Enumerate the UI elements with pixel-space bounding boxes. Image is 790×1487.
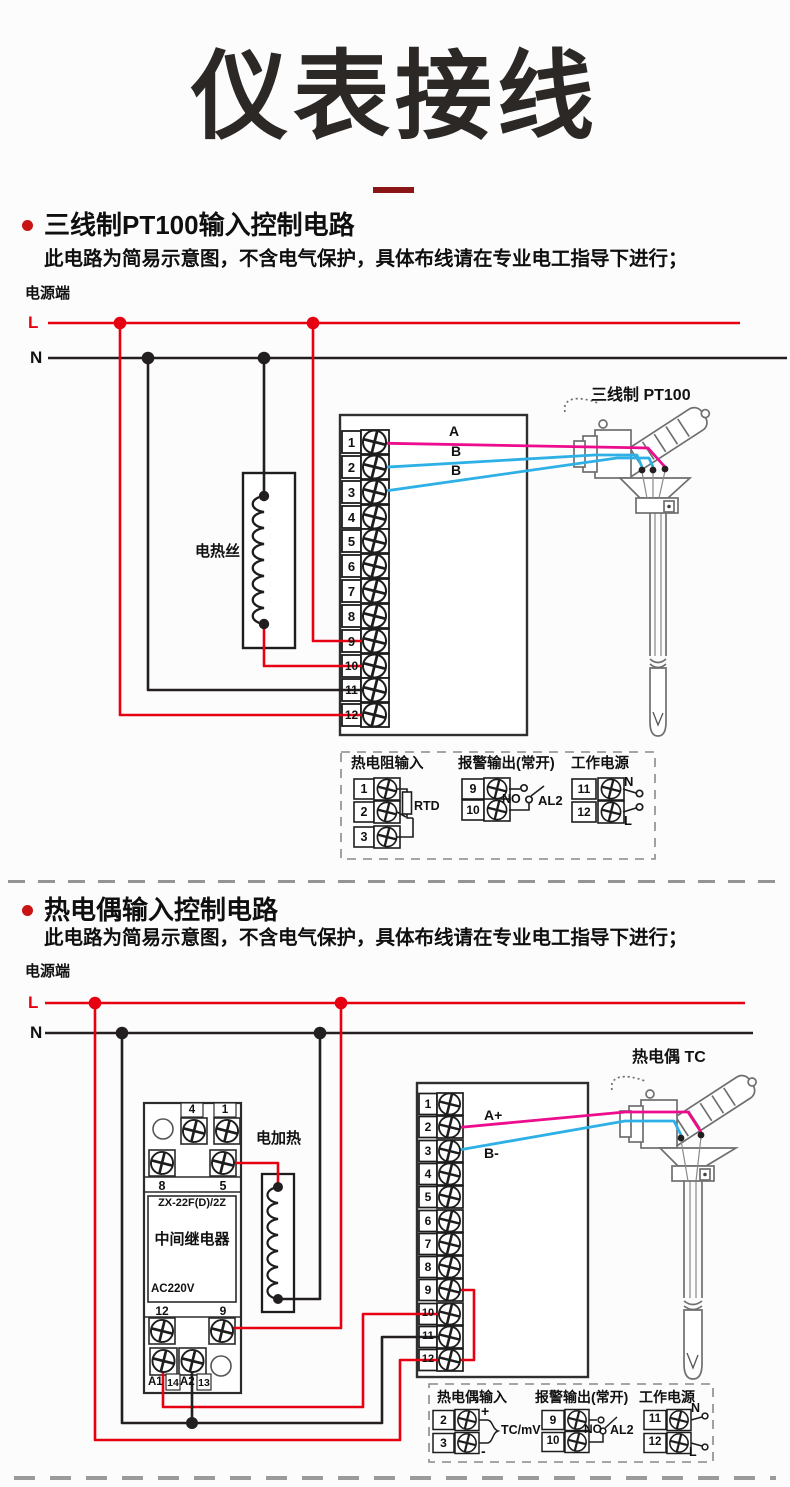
relay-t1: 1 (214, 1105, 236, 1117)
i2-terminal: 9 (419, 1284, 437, 1296)
legend1-rtd-component: RTD (414, 800, 440, 813)
heater2-label: 电加热 (256, 1131, 301, 1146)
i1-terminal: 9 (342, 635, 361, 648)
relay-name: 中间继电器 (148, 1232, 236, 1247)
i2-terminal: 4 (419, 1168, 437, 1180)
legend1-power-t1: 11 (572, 783, 596, 795)
legend2-alarm-no: NO (584, 1423, 602, 1435)
i1-terminal: 2 (342, 461, 361, 474)
wire-label-b2: B (451, 463, 461, 477)
legend2-power-title: 工作电源 (639, 1390, 695, 1404)
legend1-alarm-t1: 9 (462, 783, 484, 796)
relay-a1: A1 (148, 1377, 163, 1389)
title-underline (373, 187, 414, 193)
legend2-power-n: N (691, 1402, 700, 1415)
tc-sensor-drawing (612, 1069, 763, 1379)
section1-bullet-icon (22, 220, 33, 231)
diagram2-heater (262, 1174, 294, 1312)
i1-terminal: 3 (342, 486, 361, 499)
legend2-power-l: L (689, 1446, 697, 1459)
diagram1-heater (243, 473, 295, 648)
legend2-power-t1: 11 (644, 1414, 666, 1426)
legend2-tc-t2: 3 (433, 1437, 454, 1449)
section-divider (8, 880, 782, 883)
relay-t5: 5 (212, 1180, 234, 1193)
bottom-torn-edge (14, 1476, 776, 1480)
i1-terminal: 7 (342, 585, 361, 598)
legend1-power-n: N (624, 775, 633, 788)
section2-heading: 热电偶输入控制电路 (44, 897, 278, 923)
tc-sensor-label: 热电偶 TC (632, 1050, 706, 1066)
relay-t8: 8 (151, 1180, 173, 1193)
legend1-alarm-t2: 10 (462, 804, 484, 816)
relay-t4: 4 (181, 1105, 203, 1117)
legend2-alarm-name: AL2 (610, 1424, 634, 1437)
wire-label-a-plus: A+ (484, 1108, 502, 1122)
legend1-alarm-name: AL2 (538, 794, 563, 807)
relay-t9: 9 (212, 1305, 234, 1317)
i1-terminal: 6 (342, 560, 361, 573)
relay-t12: 12 (151, 1305, 173, 1317)
i2-terminal: 1 (419, 1098, 437, 1110)
relay-a2: A2 (180, 1377, 195, 1389)
i2-terminal: 11 (419, 1331, 437, 1342)
section2-line-n-label: N (30, 1024, 42, 1041)
legend2-alarm-title: 报警输出(常开) (535, 1390, 628, 1404)
i1-terminal: 8 (342, 610, 361, 623)
relay-voltage: AC220V (151, 1284, 194, 1296)
section1-line-l-label: L (28, 314, 38, 331)
i2-terminal: 3 (419, 1145, 437, 1157)
relay-model: ZX-22F(D)/2Z (150, 1198, 234, 1209)
legend2-alarm-t1: 9 (542, 1414, 564, 1426)
section1-heading: 三线制PT100输入控制电路 (44, 212, 355, 238)
section1-note: 此电路为简易示意图，不含电气保护，具体布线请在专业电工指导下进行； (44, 250, 688, 270)
i2-terminal: 6 (419, 1215, 437, 1227)
section1-power-label: 电源端 (25, 286, 70, 301)
section1-line-n-label: N (30, 349, 42, 366)
section2-line-l-label: L (28, 994, 38, 1011)
legend2-alarm-t2: 10 (542, 1436, 564, 1448)
wire-label-a: A (449, 424, 459, 438)
legend2-tc-plus: + (481, 1404, 489, 1418)
relay-14: 14 (166, 1378, 180, 1389)
legend1-alarm-title: 报警输出(常开) (458, 757, 555, 772)
page-title: 仪表接线 (0, 48, 790, 145)
legend2-tc-component: TC/mV (501, 1424, 541, 1437)
legend1-power-t2: 12 (572, 806, 596, 818)
i2-terminal: 12 (419, 1354, 437, 1365)
wire-label-b1: B (451, 444, 461, 458)
section2-note: 此电路为简易示意图，不含电气保护，具体布线请在专业电工指导下进行； (44, 929, 688, 949)
legend2-power-t2: 12 (644, 1437, 666, 1449)
legend1-power-title: 工作电源 (571, 757, 629, 772)
legend2-tc-title: 热电偶输入 (437, 1390, 507, 1404)
legend1-rtd-t2: 2 (354, 806, 374, 819)
i2-terminal: 2 (419, 1121, 437, 1133)
page: 仪表接线 三线制PT100输入控制电路 此电路为简易示意图，不含电气保护，具体布… (0, 0, 790, 1487)
section2-power-label: 电源端 (25, 964, 70, 979)
legend1-rtd-title: 热电阻输入 (351, 757, 424, 772)
i1-terminal: 5 (342, 535, 361, 548)
pt100-sensor-label: 三线制 PT100 (591, 388, 691, 404)
i1-terminal: 1 (342, 436, 361, 449)
legend1-rtd-t1: 1 (354, 783, 374, 796)
relay-13: 13 (197, 1378, 211, 1389)
heater1-label: 电热丝 (195, 544, 240, 559)
i1-terminal: 4 (342, 511, 361, 524)
i2-terminal: 10 (419, 1308, 437, 1319)
i2-terminal: 7 (419, 1238, 437, 1250)
legend1-rtd-t3: 3 (354, 831, 374, 844)
i1-terminal: 10 (342, 660, 361, 672)
wire-label-b-minus: B- (484, 1146, 499, 1160)
legend2-tc-minus: - (481, 1444, 486, 1458)
i2-terminal: 8 (419, 1261, 437, 1273)
legend1-power-l: L (624, 814, 632, 827)
legend1-alarm-no: NO (502, 793, 521, 806)
i2-terminal: 5 (419, 1191, 437, 1203)
section2-bullet-icon (22, 905, 33, 916)
legend2-tc-t1: 2 (433, 1414, 454, 1426)
i1-terminal: 12 (342, 709, 361, 721)
i1-terminal: 11 (342, 684, 361, 696)
